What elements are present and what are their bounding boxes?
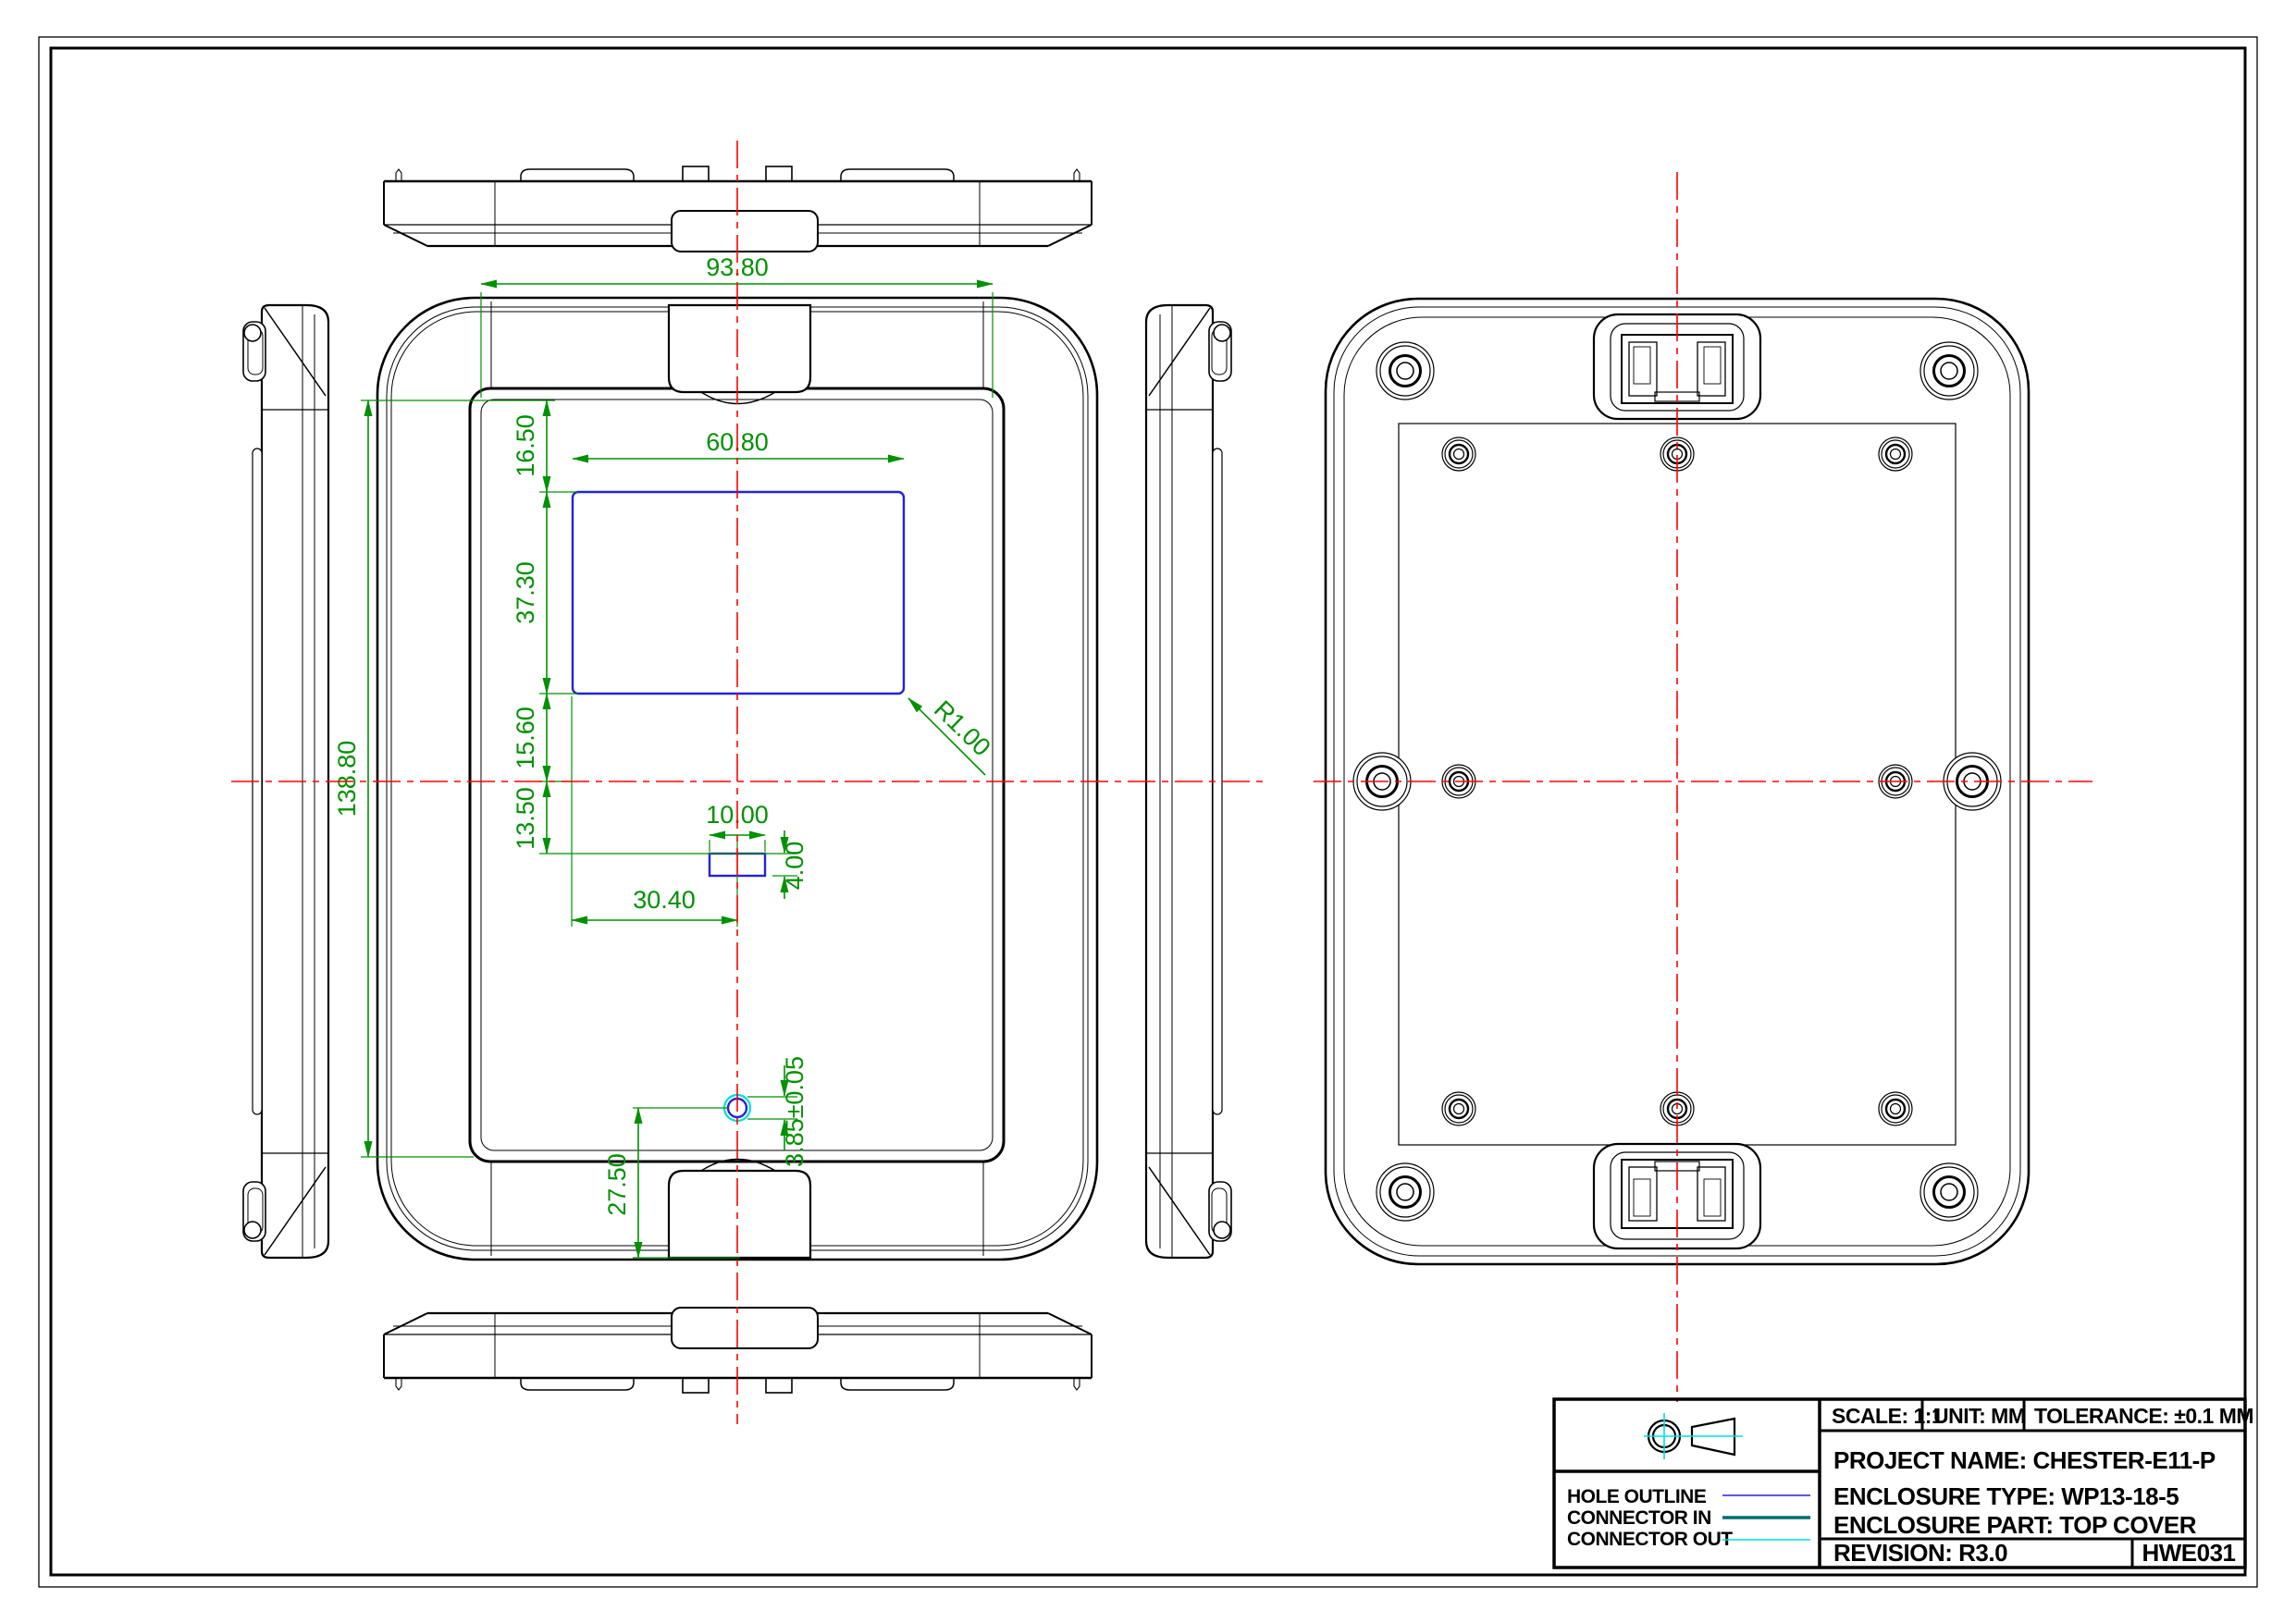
dim-hole-bottom-offset: 27.50 (603, 1153, 631, 1216)
screw-boss-small (1442, 437, 1475, 471)
part-outlines (243, 166, 2029, 1393)
titleblock-code: HWE031 (2142, 1539, 2235, 1567)
titleblock-unit: UNIT: MM (1933, 1404, 2025, 1428)
titleblock-revision: REVISION: R3.0 (1833, 1539, 2007, 1567)
legend-label-connector-out: CONNECTOR OUT (1567, 1529, 1733, 1550)
drawing-sheet: 93.80 60.80 16.50 37.30 15.60 13.50 138.… (0, 0, 2296, 1623)
titleblock-scale: SCALE: 1:1 (1832, 1404, 1944, 1428)
legend-label-connector-in: CONNECTOR IN (1567, 1507, 1711, 1529)
dim-hole-diameter: 3.85±0.05 (781, 1056, 809, 1167)
dimension-labels: 93.80 60.80 16.50 37.30 15.60 13.50 138.… (333, 253, 996, 1216)
dim-centerline-to-slot: 13.50 (512, 787, 539, 850)
dim-cutout-top-offset: 16.50 (512, 414, 539, 477)
screw-boss-large (1376, 1163, 1434, 1221)
dim-slot-height: 4.00 (781, 842, 809, 891)
screw-boss-small (1879, 437, 1912, 471)
screw-boss-large (1376, 342, 1434, 400)
screw-boss-large (1920, 1163, 1978, 1221)
legend-symbol (1644, 1413, 1743, 1459)
screw-boss-small (1442, 1092, 1475, 1125)
titleblock-tolerance: TOLERANCE: ±0.1 MM (2034, 1404, 2253, 1428)
titleblock-type: ENCLOSURE TYPE: WP13-18-5 (1833, 1482, 2179, 1510)
titleblock-project: PROJECT NAME: CHESTER-E11-P (1833, 1446, 2216, 1474)
dim-panel-height: 138.80 (333, 741, 361, 818)
dim-cutout-to-centerline: 15.60 (512, 707, 539, 769)
legend-label-hole-outline: HOLE OUTLINE (1567, 1486, 1707, 1507)
drawing-canvas: 93.80 60.80 16.50 37.30 15.60 13.50 138.… (0, 0, 2296, 1623)
titleblock-part: ENCLOSURE PART: TOP COVER (1833, 1511, 2197, 1539)
screw-boss-small (1879, 1092, 1912, 1125)
screw-boss-large (1920, 342, 1978, 400)
display-cutout-outline (573, 492, 904, 694)
extension-lines (361, 292, 993, 1258)
legend: HOLE OUTLINE CONNECTOR IN CONNECTOR OUT (1567, 1486, 1810, 1550)
title-block: HOLE OUTLINE CONNECTOR IN CONNECTOR OUT … (1554, 1399, 2253, 1568)
dim-cutout-height: 37.30 (512, 561, 539, 624)
dimension-lines (361, 284, 993, 1258)
dim-slot-center-offset: 30.40 (633, 886, 696, 914)
